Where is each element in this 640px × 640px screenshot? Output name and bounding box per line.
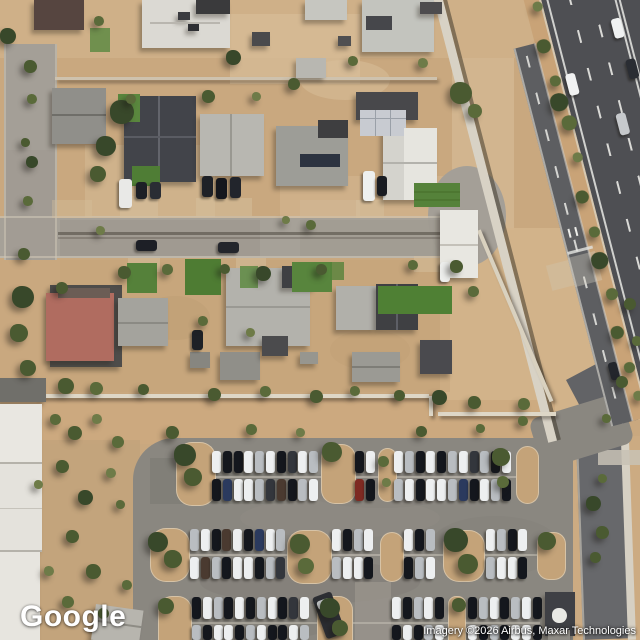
tree <box>332 620 348 636</box>
parked-car <box>415 529 424 551</box>
tree <box>164 550 182 568</box>
parked-car <box>234 451 243 473</box>
tree <box>96 136 116 156</box>
parked-car <box>192 597 201 619</box>
parked-car <box>298 451 307 473</box>
tree <box>458 554 478 574</box>
parked-car <box>244 479 253 501</box>
car <box>377 176 387 196</box>
parked-car <box>257 625 266 640</box>
tree <box>322 442 342 462</box>
building <box>200 114 264 176</box>
tree <box>298 558 314 574</box>
lawn <box>414 191 460 193</box>
parked-car <box>190 529 199 551</box>
parked-car <box>244 451 253 473</box>
parked-car <box>332 557 341 579</box>
parked-car <box>278 625 287 640</box>
parked-car <box>459 479 468 501</box>
parked-car <box>289 597 298 619</box>
solar-panels <box>300 154 340 167</box>
tree <box>350 386 360 396</box>
building <box>46 293 114 361</box>
lawn <box>127 263 157 293</box>
parked-car <box>426 557 435 579</box>
parked-car <box>223 479 232 501</box>
curb <box>0 256 456 258</box>
building <box>190 352 210 368</box>
building <box>196 0 230 14</box>
parked-car <box>192 625 201 640</box>
car <box>150 182 161 199</box>
parked-car <box>298 479 307 501</box>
parked-car <box>277 451 286 473</box>
tree <box>50 414 61 425</box>
tree <box>468 286 479 297</box>
parked-car <box>416 479 425 501</box>
parked-car <box>201 557 210 579</box>
parked-car <box>511 597 520 619</box>
tree <box>18 248 30 260</box>
parked-car <box>470 479 479 501</box>
tree <box>598 474 607 483</box>
tree <box>12 286 34 308</box>
parked-car <box>522 597 531 619</box>
parked-car <box>366 451 375 473</box>
tree <box>468 396 481 409</box>
parked-car <box>343 557 352 579</box>
parked-car <box>355 451 364 473</box>
parked-car <box>416 451 425 473</box>
roof-detail <box>52 114 106 116</box>
tree <box>624 298 636 310</box>
tree <box>348 56 358 66</box>
roof-detail <box>360 118 406 119</box>
tree <box>290 534 310 554</box>
roof-detail <box>230 114 232 176</box>
lawn <box>240 266 258 288</box>
tree <box>78 490 93 505</box>
parked-car <box>235 625 244 640</box>
parked-car <box>404 557 413 579</box>
stall-line <box>188 554 538 556</box>
tree <box>34 480 43 489</box>
driveway <box>300 200 360 218</box>
tree <box>96 226 105 235</box>
parked-car <box>332 529 341 551</box>
parked-car <box>497 529 506 551</box>
tree <box>394 390 405 401</box>
driveway <box>356 200 384 218</box>
parked-car <box>255 529 264 551</box>
parked-car <box>224 625 233 640</box>
carport-panels <box>360 110 406 136</box>
parked-car <box>392 597 401 619</box>
parked-car <box>448 451 457 473</box>
tree <box>90 166 106 182</box>
parked-car <box>414 625 423 640</box>
tree <box>86 564 101 579</box>
building <box>220 352 260 380</box>
parked-car <box>437 479 446 501</box>
parked-car <box>354 529 363 551</box>
tree <box>202 90 215 103</box>
tree <box>418 58 428 68</box>
tree <box>288 78 300 90</box>
parked-car <box>424 597 433 619</box>
tree <box>616 376 628 388</box>
lawn <box>378 286 452 314</box>
tree <box>116 500 125 509</box>
parked-car <box>392 625 401 640</box>
tree <box>226 50 241 65</box>
lawn <box>414 199 460 201</box>
parked-car <box>268 597 277 619</box>
car <box>216 178 227 199</box>
island <box>380 532 404 582</box>
building <box>262 336 288 356</box>
car <box>119 179 132 208</box>
tree <box>246 328 255 337</box>
parked-car <box>244 529 253 551</box>
curb <box>4 44 6 260</box>
tree <box>602 414 611 423</box>
parked-car <box>288 451 297 473</box>
parked-car <box>480 451 489 473</box>
parked-car <box>490 597 499 619</box>
powerline-shadow <box>58 232 440 235</box>
tree <box>538 532 556 550</box>
car <box>218 242 239 253</box>
tree <box>184 468 202 486</box>
parked-car <box>354 557 363 579</box>
parked-car <box>289 625 298 640</box>
parked-car <box>276 529 285 551</box>
parked-car <box>480 479 489 501</box>
parked-car <box>508 529 517 551</box>
wall <box>438 412 556 416</box>
tree <box>148 532 168 552</box>
parked-car <box>394 479 403 501</box>
roof-detail <box>352 366 400 368</box>
building <box>420 340 452 374</box>
building <box>0 378 46 402</box>
tree <box>518 398 530 410</box>
tree <box>162 264 173 275</box>
tree <box>26 156 38 168</box>
parked-car <box>486 529 495 551</box>
roof-detail <box>383 162 437 164</box>
drive-aisle <box>355 582 391 640</box>
tree <box>378 456 389 467</box>
stall-line <box>210 476 535 478</box>
parked-car <box>255 479 264 501</box>
parked-car <box>343 529 352 551</box>
tree <box>306 220 316 230</box>
tree <box>590 552 601 563</box>
tree <box>118 266 131 279</box>
google-logo[interactable]: Google <box>20 600 126 634</box>
car <box>440 262 450 282</box>
car <box>202 176 213 197</box>
tree <box>68 426 82 440</box>
tree <box>10 324 28 342</box>
tree <box>497 476 509 488</box>
tree <box>23 196 33 206</box>
tree <box>198 316 208 326</box>
parked-car <box>403 625 412 640</box>
tree <box>122 580 132 590</box>
parked-car <box>394 451 403 473</box>
parked-car <box>448 479 457 501</box>
parked-car <box>405 451 414 473</box>
powerline-shadow <box>58 237 440 239</box>
roof-detail <box>366 16 392 30</box>
parked-car <box>415 557 424 579</box>
car <box>136 240 157 251</box>
building <box>34 0 84 30</box>
parked-car <box>246 625 255 640</box>
parked-car <box>470 451 479 473</box>
parked-car <box>214 625 223 640</box>
parked-car <box>223 451 232 473</box>
tree <box>468 104 482 118</box>
tree <box>518 416 528 426</box>
building <box>338 36 351 46</box>
parked-car <box>246 597 255 619</box>
tree <box>476 424 485 433</box>
tree <box>316 264 327 275</box>
roof-detail <box>375 110 376 136</box>
parked-car <box>468 597 477 619</box>
car <box>192 330 203 350</box>
tree <box>90 382 103 395</box>
imagery-attribution: Imagery ©2026 Airbus, Maxar Technologies <box>423 625 636 637</box>
building <box>0 404 42 462</box>
tree <box>246 424 257 435</box>
parked-car <box>300 625 309 640</box>
parked-car <box>235 597 244 619</box>
parked-car <box>404 529 413 551</box>
building <box>305 0 347 20</box>
parked-car <box>518 557 527 579</box>
roof-detail <box>390 110 391 136</box>
crosswalk <box>598 450 640 465</box>
stall-line <box>190 622 540 624</box>
parked-car <box>266 557 275 579</box>
tree <box>596 526 609 539</box>
parked-car <box>266 479 275 501</box>
roof-detail <box>440 244 478 246</box>
parked-car <box>255 451 264 473</box>
parked-car <box>364 529 373 551</box>
roof-detail <box>0 550 42 552</box>
building <box>252 32 270 46</box>
wall <box>55 77 437 80</box>
parked-car <box>266 451 275 473</box>
building <box>0 464 42 550</box>
parked-car <box>268 625 277 640</box>
tree <box>452 598 466 612</box>
building <box>336 286 376 330</box>
roof-detail <box>124 136 196 138</box>
parked-car <box>500 597 509 619</box>
car <box>136 182 147 199</box>
tree <box>320 598 340 618</box>
parked-car <box>435 597 444 619</box>
parked-car <box>233 557 242 579</box>
island <box>516 446 539 504</box>
parked-car <box>212 451 221 473</box>
tree <box>126 94 136 104</box>
driveway <box>52 200 92 218</box>
tree <box>208 388 221 401</box>
tree <box>92 414 102 424</box>
tree <box>220 264 230 274</box>
parked-car <box>222 529 231 551</box>
parked-car <box>201 529 210 551</box>
lawn <box>414 183 460 207</box>
tree <box>0 28 16 44</box>
lawn <box>90 28 110 52</box>
parked-car <box>366 479 375 501</box>
parked-car <box>255 557 264 579</box>
tree <box>282 216 290 224</box>
roof-detail <box>150 22 220 24</box>
tree <box>138 384 149 395</box>
roof-detail <box>226 306 310 308</box>
parked-car <box>224 597 233 619</box>
roof-detail <box>0 508 42 509</box>
tree <box>27 94 37 104</box>
tree <box>158 598 174 614</box>
parked-car <box>364 557 373 579</box>
tree <box>56 460 69 473</box>
lawn <box>330 262 344 280</box>
parked-car <box>437 451 446 473</box>
parked-car <box>266 529 275 551</box>
parked-car <box>459 451 468 473</box>
tree <box>260 386 271 397</box>
car <box>363 171 375 201</box>
tree <box>450 260 463 273</box>
tree <box>66 530 79 543</box>
parked-car <box>222 557 231 579</box>
building <box>178 12 190 20</box>
tree <box>256 266 271 281</box>
building <box>188 24 199 31</box>
parked-car <box>518 529 527 551</box>
parked-car <box>257 597 266 619</box>
parked-car <box>212 529 221 551</box>
parked-car <box>203 597 212 619</box>
driveway <box>196 198 252 216</box>
parked-car <box>288 479 297 501</box>
tree <box>174 444 196 466</box>
parked-car <box>309 451 318 473</box>
parked-car <box>479 597 488 619</box>
parked-car <box>190 557 199 579</box>
parked-car <box>212 479 221 501</box>
tree <box>252 92 261 101</box>
tree <box>450 82 472 104</box>
tree <box>444 528 468 552</box>
tree <box>632 336 640 346</box>
parked-car <box>277 479 286 501</box>
tree <box>44 566 54 576</box>
tree <box>20 360 36 376</box>
building <box>420 2 442 14</box>
tree <box>166 426 179 439</box>
roof-detail <box>118 322 168 324</box>
tree <box>432 390 447 405</box>
tree <box>416 426 427 437</box>
building <box>296 58 326 78</box>
tree <box>56 282 68 294</box>
tree <box>24 60 37 73</box>
parked-car <box>309 479 318 501</box>
building <box>52 88 106 144</box>
parked-car <box>203 625 212 640</box>
tree <box>382 478 391 487</box>
satellite-map[interactable]: Google Imagery ©2026 Airbus, Maxar Techn… <box>0 0 640 640</box>
tree <box>106 468 116 478</box>
parked-car <box>414 597 423 619</box>
parked-car <box>426 451 435 473</box>
parked-car <box>233 529 242 551</box>
tree <box>58 378 74 394</box>
parked-car <box>486 557 495 579</box>
parked-car <box>300 597 309 619</box>
parked-car <box>426 479 435 501</box>
parked-car <box>508 557 517 579</box>
tree <box>408 260 418 270</box>
parked-car <box>403 597 412 619</box>
parked-car <box>234 479 243 501</box>
parked-car <box>214 597 223 619</box>
parked-car <box>244 557 253 579</box>
tree <box>296 428 305 437</box>
tree <box>310 390 323 403</box>
parked-car <box>405 479 414 501</box>
tree <box>94 16 104 26</box>
lawn <box>185 259 221 295</box>
parked-car <box>278 597 287 619</box>
tree <box>21 138 30 147</box>
dome-roof <box>552 608 567 623</box>
building <box>300 352 318 364</box>
parked-car <box>355 479 364 501</box>
tree <box>586 496 601 511</box>
parked-car <box>426 529 435 551</box>
tree <box>112 436 124 448</box>
parked-car <box>212 557 221 579</box>
parked-car <box>533 597 542 619</box>
tree <box>492 448 510 466</box>
parked-car <box>276 557 285 579</box>
car <box>230 177 241 198</box>
roof-detail <box>318 120 348 138</box>
roof-detail <box>0 462 42 464</box>
parked-car <box>497 557 506 579</box>
